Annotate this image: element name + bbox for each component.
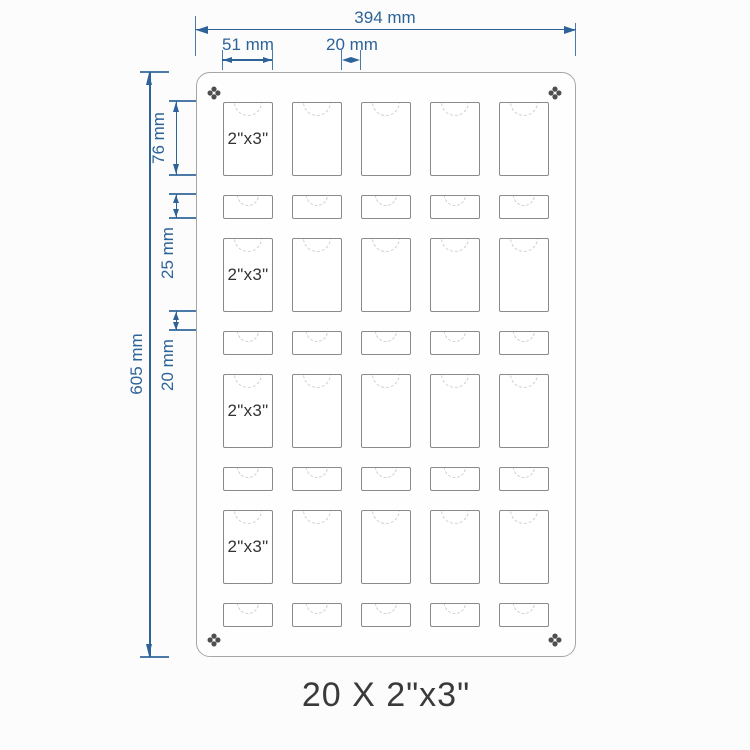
thumb-notch-arc-icon <box>234 102 262 116</box>
card-slot-2x3 <box>361 102 411 176</box>
dim-label-small-slot-height: 25 mm <box>158 227 178 279</box>
arrowhead-up-icon <box>173 102 179 112</box>
thumb-notch-arc-icon <box>441 510 469 524</box>
card-slot-2x3 <box>361 374 411 448</box>
divider-slot <box>292 331 342 355</box>
dim-label-large-slot-height: 76 mm <box>149 112 169 164</box>
card-slot-2x3 <box>499 102 549 176</box>
thumb-notch-arc-icon <box>513 195 535 206</box>
thumb-notch-arc-icon <box>303 102 331 116</box>
thumb-notch-arc-icon <box>444 467 466 478</box>
arrowhead-right-icon <box>351 57 360 63</box>
card-slot-2x3: 2"x3" <box>223 102 273 176</box>
card-slot-2x3: 2"x3" <box>223 510 273 584</box>
extension-tick <box>140 656 169 657</box>
divider-slot <box>430 195 480 219</box>
arrowhead-right-icon <box>564 26 576 34</box>
card-slot-2x3 <box>430 374 480 448</box>
dimension-line <box>195 29 576 30</box>
slot-size-label: 2"x3" <box>228 129 269 149</box>
screw-icon <box>548 86 562 100</box>
thumb-notch-arc-icon <box>306 331 328 342</box>
thumb-notch-arc-icon <box>444 331 466 342</box>
thumb-notch-arc-icon <box>372 238 400 252</box>
divider-slot <box>361 331 411 355</box>
thumb-notch-arc-icon <box>234 374 262 388</box>
arrowhead-down-icon <box>173 209 179 217</box>
slot-size-label: 2"x3" <box>228 537 269 557</box>
thumb-notch-arc-icon <box>510 102 538 116</box>
arrowhead-down-icon <box>173 164 179 174</box>
arrowhead-left-icon <box>342 57 351 63</box>
slot-size-label: 2"x3" <box>228 401 269 421</box>
thumb-notch-arc-icon <box>444 603 466 614</box>
card-slot-2x3 <box>499 510 549 584</box>
thumb-notch-arc-icon <box>237 603 259 614</box>
arrowhead-up-icon <box>173 195 179 203</box>
divider-slot <box>292 603 342 627</box>
thumb-notch-arc-icon <box>375 195 397 206</box>
divider-slot <box>361 467 411 491</box>
dim-label-total-height: 605 mm <box>127 333 147 394</box>
thumb-notch-arc-icon <box>441 374 469 388</box>
dim-label-row-gap: 20 mm <box>158 339 178 391</box>
arrowhead-down-icon <box>173 322 179 330</box>
divider-slot <box>223 467 273 491</box>
divider-slot <box>223 603 273 627</box>
divider-slot <box>430 331 480 355</box>
card-slot-2x3: 2"x3" <box>223 374 273 448</box>
dim-label-total-width: 394 mm <box>354 8 415 28</box>
divider-slot <box>292 467 342 491</box>
divider-slot <box>499 467 549 491</box>
slot-size-label: 2"x3" <box>228 265 269 285</box>
divider-slot <box>361 603 411 627</box>
divider-slot <box>223 195 273 219</box>
card-slot-2x3 <box>292 238 342 312</box>
thumb-notch-arc-icon <box>375 331 397 342</box>
extension-tick <box>169 217 196 218</box>
thumb-notch-arc-icon <box>375 467 397 478</box>
thumb-notch-arc-icon <box>513 331 535 342</box>
thumb-notch-arc-icon <box>237 331 259 342</box>
card-slot-2x3 <box>430 102 480 176</box>
dim-label-column-gap: 20 mm <box>326 35 378 55</box>
card-slot-2x3: 2"x3" <box>223 238 273 312</box>
product-caption: 20 X 2"x3" <box>146 676 626 715</box>
card-slot-2x3 <box>430 238 480 312</box>
thumb-notch-arc-icon <box>237 467 259 478</box>
thumb-notch-arc-icon <box>444 195 466 206</box>
thumb-notch-arc-icon <box>441 102 469 116</box>
arrowhead-up-icon <box>146 73 152 85</box>
arrowhead-left-icon <box>223 57 232 63</box>
technical-drawing-canvas: 394 mm 51 mm 20 mm 605 mm 76 mm <box>0 0 750 750</box>
display-panel-outline: 2"x3"2"x3"2"x3"2"x3" <box>196 72 576 657</box>
divider-slot <box>361 195 411 219</box>
extension-tick <box>140 71 169 72</box>
dim-label-slot-width: 51 mm <box>222 35 274 55</box>
divider-slot <box>223 331 273 355</box>
thumb-notch-arc-icon <box>306 467 328 478</box>
thumb-notch-arc-icon <box>510 510 538 524</box>
divider-slot <box>430 603 480 627</box>
card-slot-2x3 <box>361 238 411 312</box>
thumb-notch-arc-icon <box>234 238 262 252</box>
card-slot-2x3 <box>499 374 549 448</box>
divider-slot <box>499 195 549 219</box>
thumb-notch-arc-icon <box>375 603 397 614</box>
divider-slot <box>499 331 549 355</box>
divider-slot <box>499 603 549 627</box>
card-slot-2x3 <box>292 510 342 584</box>
divider-slot <box>430 467 480 491</box>
thumb-notch-arc-icon <box>510 238 538 252</box>
screw-icon <box>548 633 562 647</box>
thumb-notch-arc-icon <box>513 467 535 478</box>
arrowhead-up-icon <box>173 312 179 320</box>
screw-icon <box>207 86 221 100</box>
thumb-notch-arc-icon <box>234 510 262 524</box>
thumb-notch-arc-icon <box>237 195 259 206</box>
card-slot-2x3 <box>292 374 342 448</box>
thumb-notch-arc-icon <box>306 603 328 614</box>
arrowhead-down-icon <box>146 644 152 656</box>
screw-icon <box>207 633 221 647</box>
thumb-notch-arc-icon <box>513 603 535 614</box>
thumb-notch-arc-icon <box>303 374 331 388</box>
divider-slot <box>292 195 342 219</box>
arrowhead-right-icon <box>263 57 272 63</box>
thumb-notch-arc-icon <box>303 510 331 524</box>
thumb-notch-arc-icon <box>306 195 328 206</box>
thumb-notch-arc-icon <box>372 510 400 524</box>
card-slot-2x3 <box>361 510 411 584</box>
card-slot-2x3 <box>292 102 342 176</box>
thumb-notch-arc-icon <box>303 238 331 252</box>
card-slot-2x3 <box>430 510 480 584</box>
extension-tick <box>195 16 196 56</box>
thumb-notch-arc-icon <box>441 238 469 252</box>
thumb-notch-arc-icon <box>372 374 400 388</box>
card-slot-2x3 <box>499 238 549 312</box>
arrowhead-left-icon <box>196 26 208 34</box>
extension-tick <box>169 174 196 175</box>
thumb-notch-arc-icon <box>372 102 400 116</box>
thumb-notch-arc-icon <box>510 374 538 388</box>
